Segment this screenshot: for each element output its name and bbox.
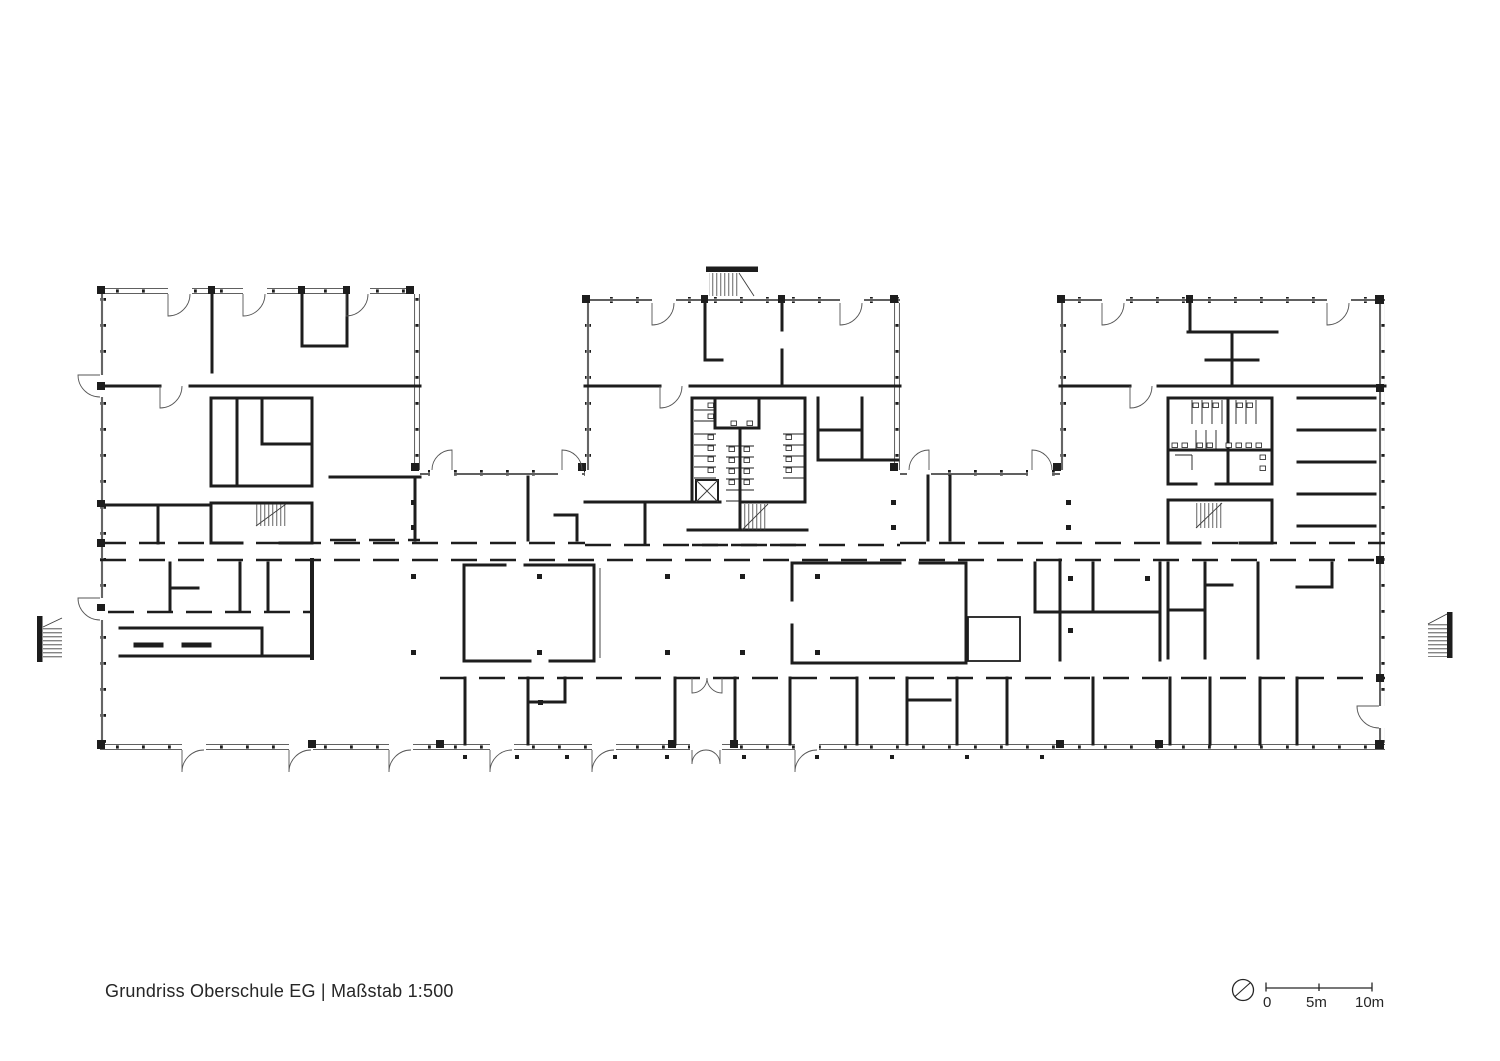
stair-hatch (1428, 624, 1447, 657)
hall-kiosk-room (968, 617, 1020, 661)
walls-lower-band (120, 560, 1332, 744)
stair-wall-bar (37, 616, 43, 662)
stair-diagonal (739, 273, 754, 296)
stair-hatch (43, 627, 62, 660)
stair-wall-bar (1447, 612, 1453, 658)
canopy-columns (463, 755, 1044, 759)
wc-stalls-right-core (1172, 400, 1266, 471)
scale-label-zero: 0 (1263, 994, 1271, 1011)
facade-courtyard1-west (414, 294, 420, 470)
title-block: Grundriss Oberschule EG | Maßstab 1:500 (105, 981, 454, 1001)
north-needle (1235, 983, 1250, 997)
scale-bar-line (1266, 983, 1372, 992)
stall-partitions (1175, 400, 1256, 470)
stair-core-center (742, 504, 768, 530)
stair-diagonal (43, 618, 62, 627)
elevator-x-icon (696, 480, 718, 502)
door-swing-arcs (78, 294, 1379, 772)
stair-hatch (709, 273, 739, 296)
north-arrow-icon (1233, 980, 1254, 1001)
misc-dashed-walls (108, 540, 805, 612)
exterior-stair-top (706, 267, 758, 297)
scale-label-mid: 5m (1306, 994, 1327, 1011)
scale-label-end: 10m (1355, 994, 1384, 1011)
elevator (696, 480, 718, 502)
plan-sheet: Grundriss Oberschule EG | Maßstab 1:500 … (0, 0, 1500, 1061)
facade-west (100, 294, 106, 744)
scale-bar: 0 5m 10m (1263, 983, 1384, 1012)
stair-core-left (256, 504, 286, 526)
walls-left-wing (100, 294, 577, 543)
walls-right-wing (928, 303, 1385, 543)
stair-core-right (1196, 503, 1222, 528)
exterior-stair-right (1428, 612, 1453, 658)
wc-stalls-center-core (694, 403, 805, 501)
exterior-stair-left (37, 616, 62, 662)
stair-wall-bar (706, 267, 758, 273)
caption-text: Grundriss Oberschule EG | Maßstab 1:500 (105, 981, 454, 1001)
stair-diagonal (1428, 614, 1447, 624)
floor-plan-drawing: Grundriss Oberschule EG | Maßstab 1:500 … (0, 0, 1500, 1061)
